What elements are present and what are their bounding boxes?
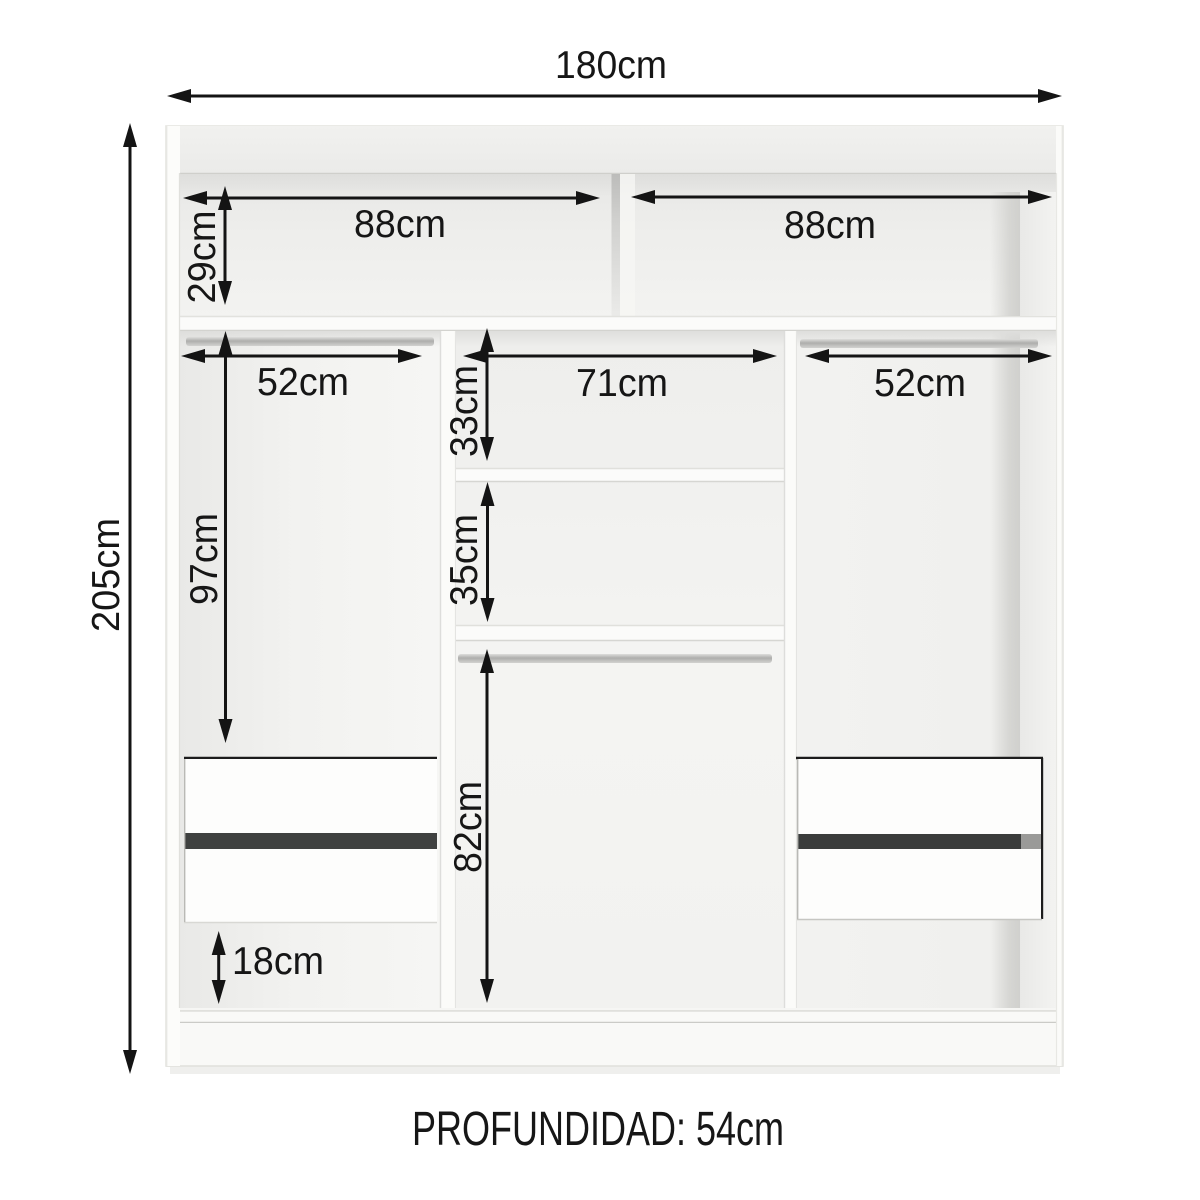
svg-text:88cm: 88cm [784,204,876,247]
svg-text:35cm: 35cm [443,514,486,606]
svg-text:205cm: 205cm [85,518,128,632]
svg-text:97cm: 97cm [183,513,226,605]
svg-text:88cm: 88cm [354,203,446,246]
svg-text:29cm: 29cm [181,211,224,304]
svg-text:52cm: 52cm [874,362,966,405]
svg-text:18cm: 18cm [232,940,324,983]
svg-text:180cm: 180cm [555,44,667,87]
svg-text:71cm: 71cm [576,362,668,405]
svg-text:82cm: 82cm [447,781,490,873]
svg-text:PROFUNDIDAD: 54cm: PROFUNDIDAD: 54cm [412,1103,784,1156]
svg-text:52cm: 52cm [257,361,349,404]
svg-text:33cm: 33cm [443,365,486,457]
